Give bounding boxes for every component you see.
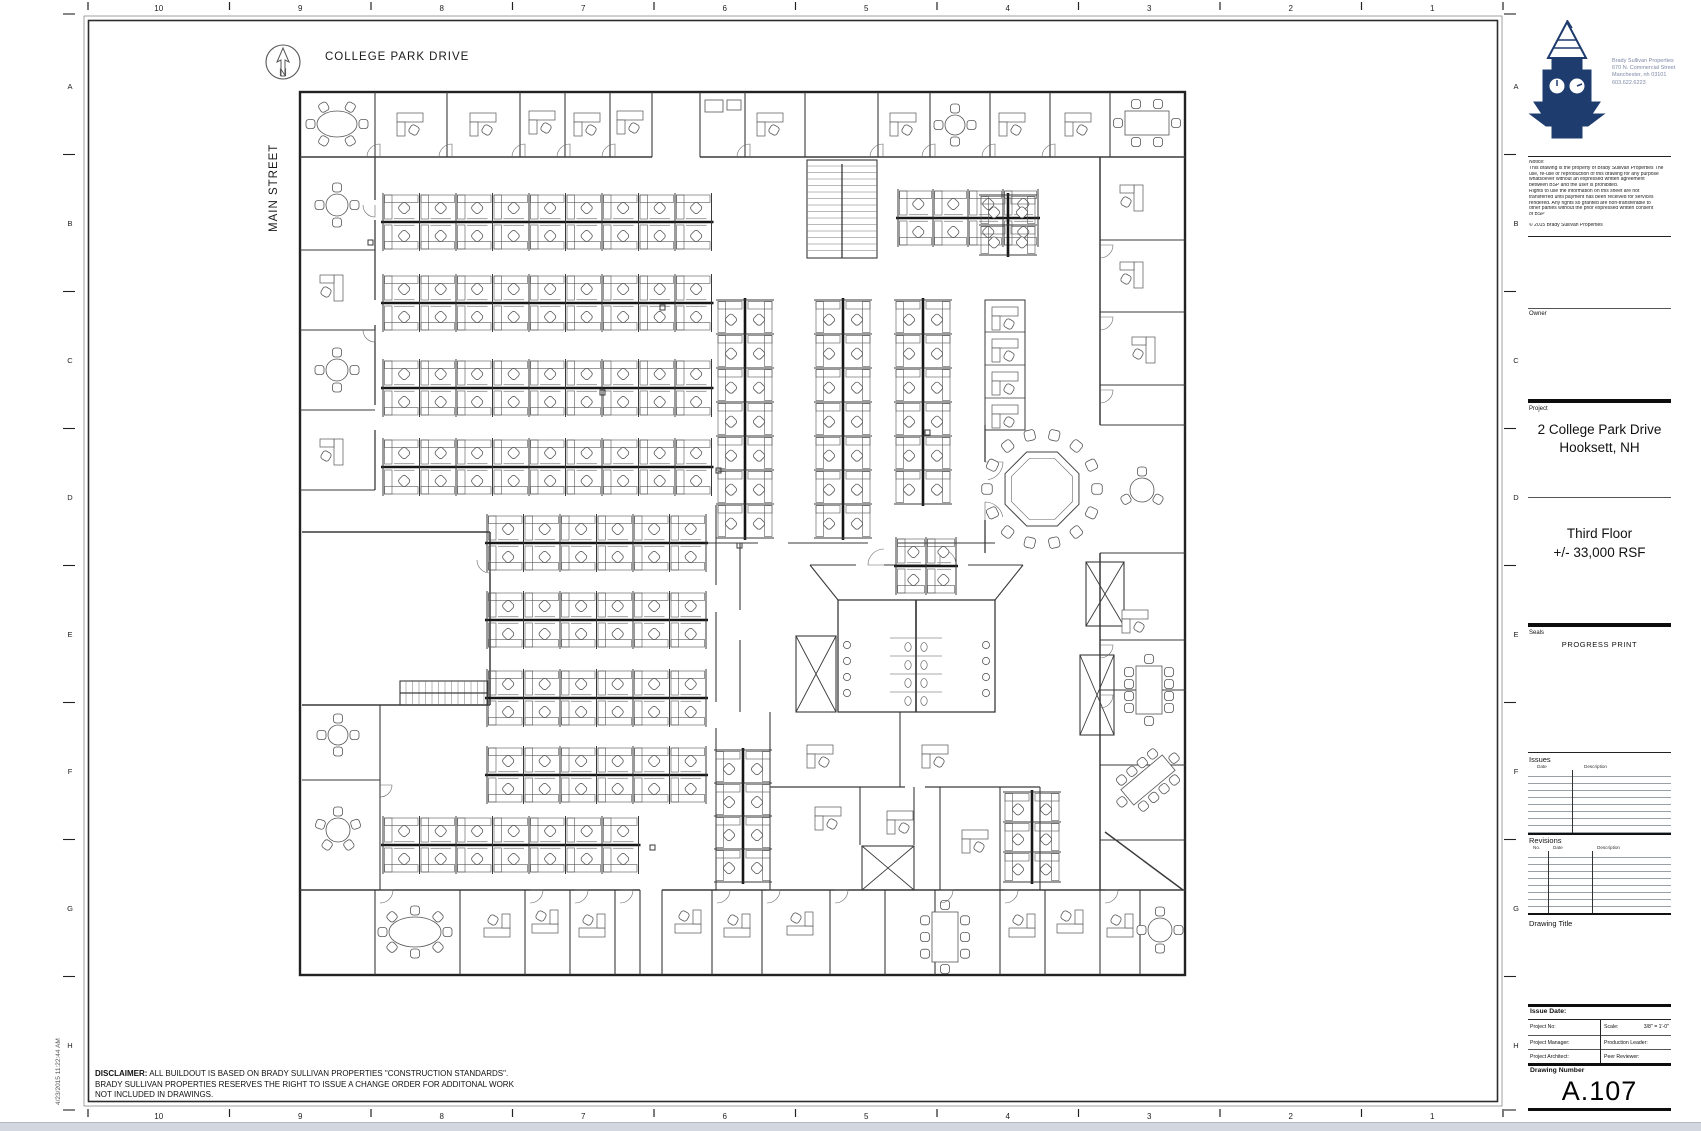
disclaimer-line3: NOT INCLUDED IN DRAWINGS. <box>95 1090 535 1101</box>
disclaimer: DISCLAIMER: ALL BUILDOUT IS BASED ON BRA… <box>95 1069 535 1101</box>
ruler-bottom-number: 7 <box>581 1112 586 1121</box>
street-label-college-park-drive: COLLEGE PARK DRIVE <box>325 51 469 63</box>
seals-label: Seals <box>1529 630 1544 636</box>
issues-col-date: Date <box>1537 764 1547 769</box>
ruler-top-number: 7 <box>581 4 586 13</box>
ruler-right-letter: B <box>1513 219 1518 228</box>
ruler-top-number: 10 <box>154 4 163 13</box>
firm-phone: 603.622.6223 <box>1612 80 1682 87</box>
divider <box>1528 156 1671 157</box>
floor-rsf: +/- 33,000 RSF <box>1528 545 1671 560</box>
divider <box>1528 236 1671 237</box>
ruler-bottom-number: 2 <box>1289 1112 1294 1121</box>
revisions-col-desc: Description <box>1597 845 1620 850</box>
drawing-number: A.107 <box>1528 1076 1671 1107</box>
ruler-left-letter: A <box>67 82 72 91</box>
project-architect-label: Project Architect: <box>1530 1054 1569 1060</box>
ruler-bottom-number: 8 <box>440 1112 445 1121</box>
ruler-right-letter: G <box>1513 904 1519 913</box>
ruler-top-number: 6 <box>723 4 728 13</box>
ruler-top-number: 8 <box>440 4 445 13</box>
divider-heavy <box>1528 1004 1671 1007</box>
progress-print-stamp: PROGRESS PRINT <box>1528 640 1671 649</box>
drawing-title-label: Drawing Title <box>1529 919 1572 928</box>
notice-block: Notice: This drawing is the property of … <box>1529 160 1670 229</box>
disclaimer-text1: ALL BUILDOUT IS BASED ON BRADY SULLIVAN … <box>147 1069 508 1078</box>
octagon-conference-room <box>982 429 1103 549</box>
ruler-top-number: 1 <box>1430 4 1435 13</box>
divider-heavy <box>1528 399 1671 403</box>
scale-label: Scale: <box>1604 1024 1618 1030</box>
ruler-bottom-number: 5 <box>864 1112 869 1121</box>
revisions-table-divider <box>1548 851 1549 913</box>
drawing-number-label: Drawing Number <box>1530 1067 1584 1074</box>
ruler-right-letter: D <box>1513 493 1519 502</box>
ruler-left-letter: F <box>68 767 73 776</box>
cubicle-area <box>368 189 1061 884</box>
ruler-left-letter: B <box>67 219 72 228</box>
issues-table-divider <box>1572 770 1573 833</box>
ruler-top-number: 2 <box>1289 4 1294 13</box>
ruler-left-letter: E <box>67 630 72 639</box>
divider <box>1528 308 1671 309</box>
project-no-label: Project No: <box>1530 1024 1556 1030</box>
ruler-right-letter: C <box>1513 356 1519 365</box>
ruler-bottom-number: 4 <box>1006 1112 1011 1121</box>
divider-heavy <box>1528 1108 1671 1111</box>
ruler-bottom-number: 9 <box>298 1112 303 1121</box>
revisions-table-divider <box>1592 851 1593 913</box>
ruler-left-letter: G <box>67 904 73 913</box>
firm-address2: Manchester, nh 03101 <box>1612 72 1682 79</box>
owner-label: Owner <box>1529 311 1547 317</box>
street-label-main-street: MAIN STREET <box>268 144 280 232</box>
ruler-top-number: 9 <box>298 4 303 13</box>
ruler-right-letter: H <box>1513 1041 1518 1050</box>
ruler-right-letter: F <box>1514 767 1519 776</box>
drawing-sheet: 1098765432110987654321ABCDEFGHABCDEFGHCO… <box>0 0 1701 1131</box>
print-timestamp: 4/23/2015 11:22:44 AM <box>55 1038 62 1105</box>
north-letter: N <box>279 67 287 79</box>
revisions-col-no: No. <box>1533 845 1540 850</box>
revisions-table <box>1528 851 1671 915</box>
ruler: 1098765432110987654321ABCDEFGHABCDEFGH <box>63 2 1519 1121</box>
disclaimer-label: DISCLAIMER: <box>95 1069 147 1078</box>
firm-address1: 670 N. Commercial Street <box>1612 65 1682 72</box>
ruler-bottom-number: 6 <box>723 1112 728 1121</box>
issues-label: Issues <box>1529 755 1551 764</box>
project-label: Project <box>1529 406 1548 412</box>
ruler-right-letter: E <box>1513 630 1518 639</box>
production-leader-label: Production Leader: <box>1604 1040 1648 1046</box>
brady-sullivan-clocktower-logo <box>1526 20 1608 140</box>
project-manager-label: Project Manager: <box>1530 1040 1570 1046</box>
copyright: © 2015 Brady Sullivan Properties <box>1529 223 1670 229</box>
ruler-left-letter: D <box>67 493 73 502</box>
project-name-line2: Hooksett, NH <box>1528 440 1671 455</box>
core <box>796 160 1124 890</box>
issues-col-desc: Description <box>1584 764 1607 769</box>
scale-value: 3/8" = 1'-0" <box>1644 1024 1669 1030</box>
firm-address: Brady Sullivan Properties 670 N. Commerc… <box>1612 58 1682 87</box>
project-name-line1: 2 College Park Drive <box>1528 422 1671 437</box>
doors <box>363 144 1118 903</box>
ruler-top-number: 3 <box>1147 4 1152 13</box>
divider-heavy <box>1528 623 1671 627</box>
floor-title: Third Floor <box>1528 526 1671 541</box>
ruler-top-number: 5 <box>864 4 869 13</box>
fields-divider <box>1600 1019 1601 1063</box>
ruler-right-letter: A <box>1513 82 1518 91</box>
ruler-top-number: 4 <box>1006 4 1011 13</box>
divider <box>1528 752 1671 753</box>
issue-date-label: Issue Date: <box>1530 1008 1566 1015</box>
disclaimer-line2: BRADY SULLIVAN PROPERTIES RESERVES THE R… <box>95 1080 535 1091</box>
divider <box>1528 497 1671 498</box>
divider-heavy <box>1528 1063 1671 1066</box>
ruler-bottom-number: 1 <box>1430 1112 1435 1121</box>
revisions-label: Revisions <box>1529 836 1562 845</box>
peer-reviewer-label: Peer Reviewer: <box>1604 1054 1639 1060</box>
ruler-bottom-number: 10 <box>154 1112 163 1121</box>
ruler-left-letter: H <box>67 1041 72 1050</box>
notice-line: of BSP <box>1529 212 1670 218</box>
floor-plan-canvas: 1098765432110987654321ABCDEFGHABCDEFGHCO… <box>0 0 1701 1131</box>
revisions-col-date: Date <box>1553 845 1563 850</box>
sheet-border <box>84 16 1502 1106</box>
firm-name: Brady Sullivan Properties <box>1612 58 1682 65</box>
window-edge-strip <box>0 1122 1701 1131</box>
notice-line: other parties without the prior expresse… <box>1529 206 1670 212</box>
title-block: Brady Sullivan Properties 670 N. Commerc… <box>1528 0 1671 1131</box>
north-arrow: N <box>266 45 300 79</box>
perimeter-furniture <box>306 100 1191 974</box>
ruler-left-letter: C <box>67 356 73 365</box>
issues-table <box>1528 770 1671 835</box>
ruler-bottom-number: 3 <box>1147 1112 1152 1121</box>
